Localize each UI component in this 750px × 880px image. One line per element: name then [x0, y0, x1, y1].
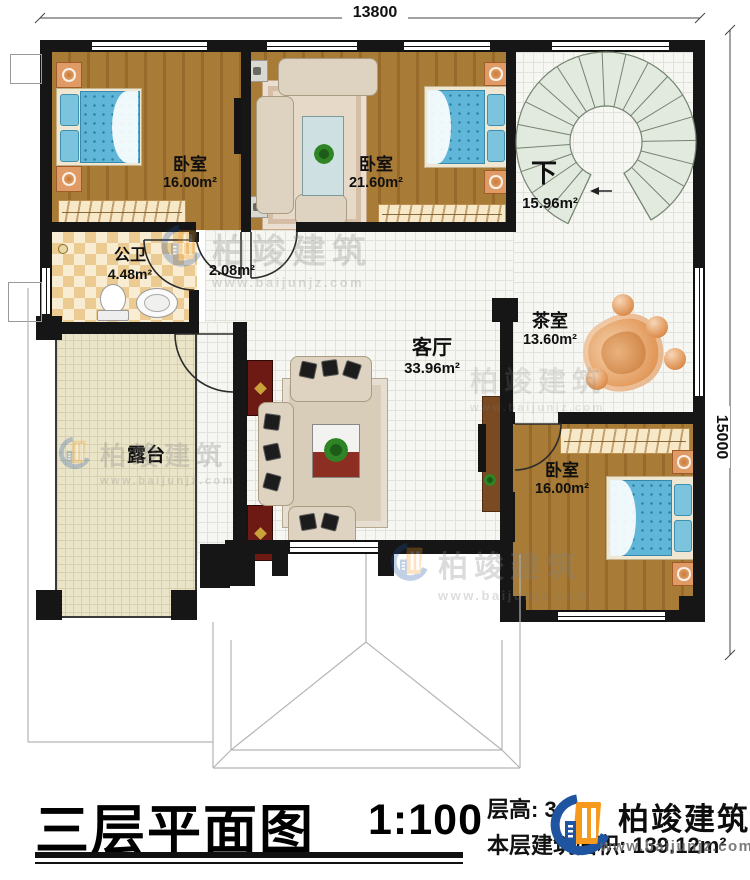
stair-direction-label: 下 — [522, 160, 566, 187]
room-area-tea: 13.60m² — [514, 333, 586, 348]
wall-segment — [296, 222, 513, 232]
sofa-pillow — [299, 513, 318, 532]
title-rule-thin — [35, 862, 463, 864]
sofa-pillow — [299, 361, 318, 380]
floor-plan-sheet: 卧室 16.00m² 卧室 21.60m² 下 15.96m² 公卫 4.48m… — [0, 0, 750, 880]
pillow — [674, 520, 692, 552]
wall-segment — [500, 412, 515, 424]
wall-segment — [558, 412, 705, 424]
pillow — [60, 94, 79, 126]
wall-segment — [40, 322, 199, 334]
nightstand — [484, 62, 508, 86]
wall-post — [378, 540, 394, 576]
dimension-top-width: 13800 — [342, 4, 408, 22]
window — [552, 40, 669, 52]
dimension-right-height: 15000 — [712, 406, 730, 468]
wardrobe — [378, 204, 506, 224]
wall-post — [500, 596, 526, 622]
sofa-pillow — [263, 413, 281, 431]
sofa — [278, 58, 378, 96]
wall-segment — [233, 322, 247, 554]
wall-post — [171, 590, 197, 620]
tv-screen — [234, 98, 241, 154]
room-area-living: 33.96m² — [396, 361, 468, 377]
room-name-terrace: 露台 — [118, 446, 174, 466]
wall-segment — [500, 310, 513, 412]
title-rule-thick — [35, 852, 463, 858]
wall-segment — [189, 232, 199, 242]
window — [92, 40, 207, 52]
sofa — [256, 96, 294, 214]
wardrobe — [58, 200, 186, 224]
floor-terrace-walkway — [197, 322, 233, 560]
wardrobe — [560, 428, 690, 454]
room-name-bedroom-tl: 卧室 — [132, 156, 248, 174]
brand-website: www.baijunjz.com — [600, 838, 750, 855]
wall-post — [200, 544, 230, 588]
wall-segment — [378, 540, 513, 554]
room-name-bathroom: 公卫 — [104, 248, 156, 265]
tea-stool — [586, 368, 608, 390]
tea-stool — [612, 294, 634, 316]
tea-stool — [664, 348, 686, 370]
room-name-tea: 茶室 — [520, 312, 580, 331]
wall-post — [492, 298, 518, 322]
stair-area-label: 15.96m² — [505, 196, 595, 212]
toilet-tank — [97, 310, 129, 321]
window — [267, 40, 357, 52]
room-name-bedroom-tm: 卧室 — [318, 156, 434, 174]
window — [693, 268, 705, 396]
room-area-bedroom-tl: 16.00m² — [132, 176, 248, 191]
room-area-bathroom: 4.48m² — [98, 267, 162, 282]
wall-post — [36, 590, 62, 620]
window — [558, 610, 665, 622]
wall-post — [272, 540, 288, 576]
title-block: 三层平面图 1:100 层高: 3. 本层建筑面积: 139.12m² 柏竣建筑… — [0, 780, 750, 880]
exterior-ledge — [8, 282, 42, 322]
wall-post — [679, 596, 705, 622]
wall-segment — [189, 290, 199, 322]
table-plant — [324, 438, 348, 462]
pillow — [60, 130, 79, 162]
corridor-area-label: 2.08m² — [202, 264, 262, 279]
sofa-pillow — [321, 359, 339, 377]
bed-sheet-fold — [112, 91, 138, 163]
pillow — [487, 94, 505, 126]
wall-segment — [241, 52, 251, 232]
pillow — [487, 130, 505, 162]
exterior-ledge — [10, 54, 42, 84]
wall-segment — [500, 424, 513, 622]
small-plant — [484, 474, 496, 486]
sofa-pillow — [263, 443, 282, 462]
window — [404, 40, 490, 52]
brand-name: 柏竣建筑 — [618, 794, 750, 839]
nightstand — [56, 166, 82, 192]
pillow — [674, 484, 692, 516]
tv-screen — [478, 424, 486, 472]
sheet-scale: 1:100 — [368, 796, 483, 845]
floor-drain — [58, 244, 68, 254]
room-name-bedroom-br: 卧室 — [528, 462, 596, 480]
room-name-living: 客厅 — [396, 338, 468, 359]
nightstand — [56, 62, 82, 88]
floor-terrace — [55, 332, 197, 618]
window — [290, 540, 378, 554]
room-area-bedroom-br: 16.00m² — [524, 482, 600, 497]
nightstand — [484, 170, 508, 194]
wall-segment — [52, 222, 196, 232]
room-area-bedroom-tm: 21.60m² — [318, 176, 434, 191]
tea-stool — [646, 316, 668, 338]
sink-basin — [136, 288, 178, 318]
